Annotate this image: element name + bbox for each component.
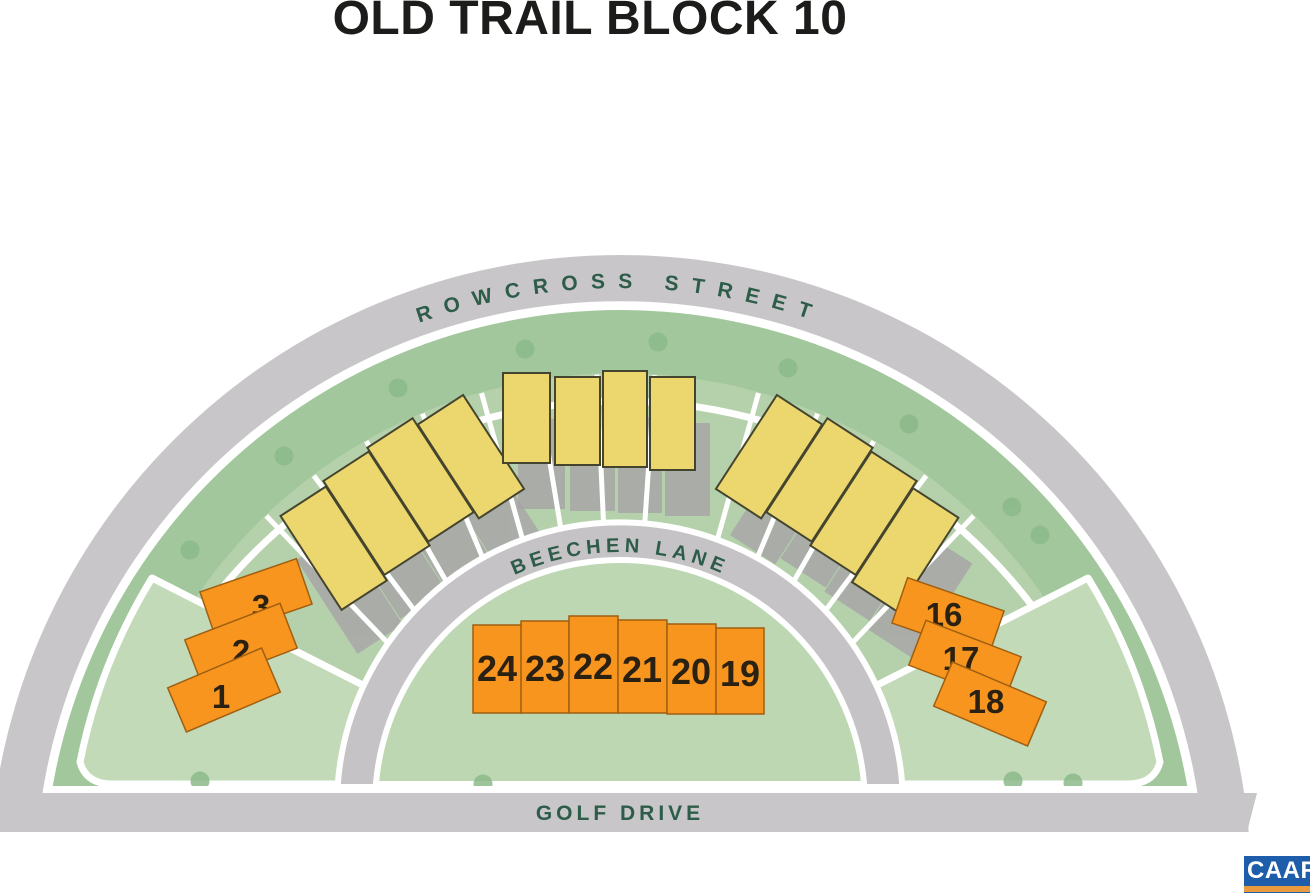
caar-logo-stripe — [1244, 886, 1310, 893]
lot-24: 24 — [473, 625, 522, 713]
lot-number: 23 — [525, 648, 565, 689]
caar-logo-text: CAAR — [1244, 856, 1310, 886]
lot-number: 18 — [968, 683, 1005, 720]
lot-21: 21 — [618, 620, 667, 713]
lot-22: 22 — [569, 616, 618, 713]
lot-number: 19 — [720, 653, 760, 694]
tree-dot — [474, 775, 493, 794]
tree-dot — [1003, 498, 1022, 517]
tree-dot — [649, 333, 668, 352]
tree-dot — [1064, 774, 1083, 793]
townhouse-building — [503, 373, 550, 463]
lot-20: 20 — [667, 624, 716, 714]
tree-dot — [181, 541, 200, 560]
tree-dot — [191, 772, 210, 791]
caar-logo: CAAR — [1244, 856, 1310, 893]
lot-number: 21 — [622, 649, 662, 690]
lot-number: 1 — [212, 678, 230, 715]
lot-number: 22 — [573, 646, 613, 687]
tree-dot — [900, 415, 919, 434]
tree-dot — [389, 379, 408, 398]
tree-dot — [1031, 526, 1050, 545]
tree-dot — [275, 447, 294, 466]
buildings-center-group — [503, 371, 695, 470]
site-plan: 3 2 1 16 17 18 24 23 — [0, 0, 1310, 893]
townhouse-building — [555, 377, 600, 465]
tree-dot — [779, 359, 798, 378]
townhouse-building — [650, 377, 695, 470]
townhouse-building — [603, 371, 647, 467]
golf-drive-label: GOLF DRIVE — [536, 802, 704, 825]
lot-number: 20 — [671, 651, 711, 692]
tree-dot — [516, 340, 535, 359]
lot-number: 24 — [477, 648, 517, 689]
page-title: OLD TRAIL BLOCK 10 — [0, 0, 1180, 46]
tree-dot — [1004, 772, 1023, 791]
lot-23: 23 — [521, 621, 569, 713]
lot-19: 19 — [716, 628, 764, 714]
